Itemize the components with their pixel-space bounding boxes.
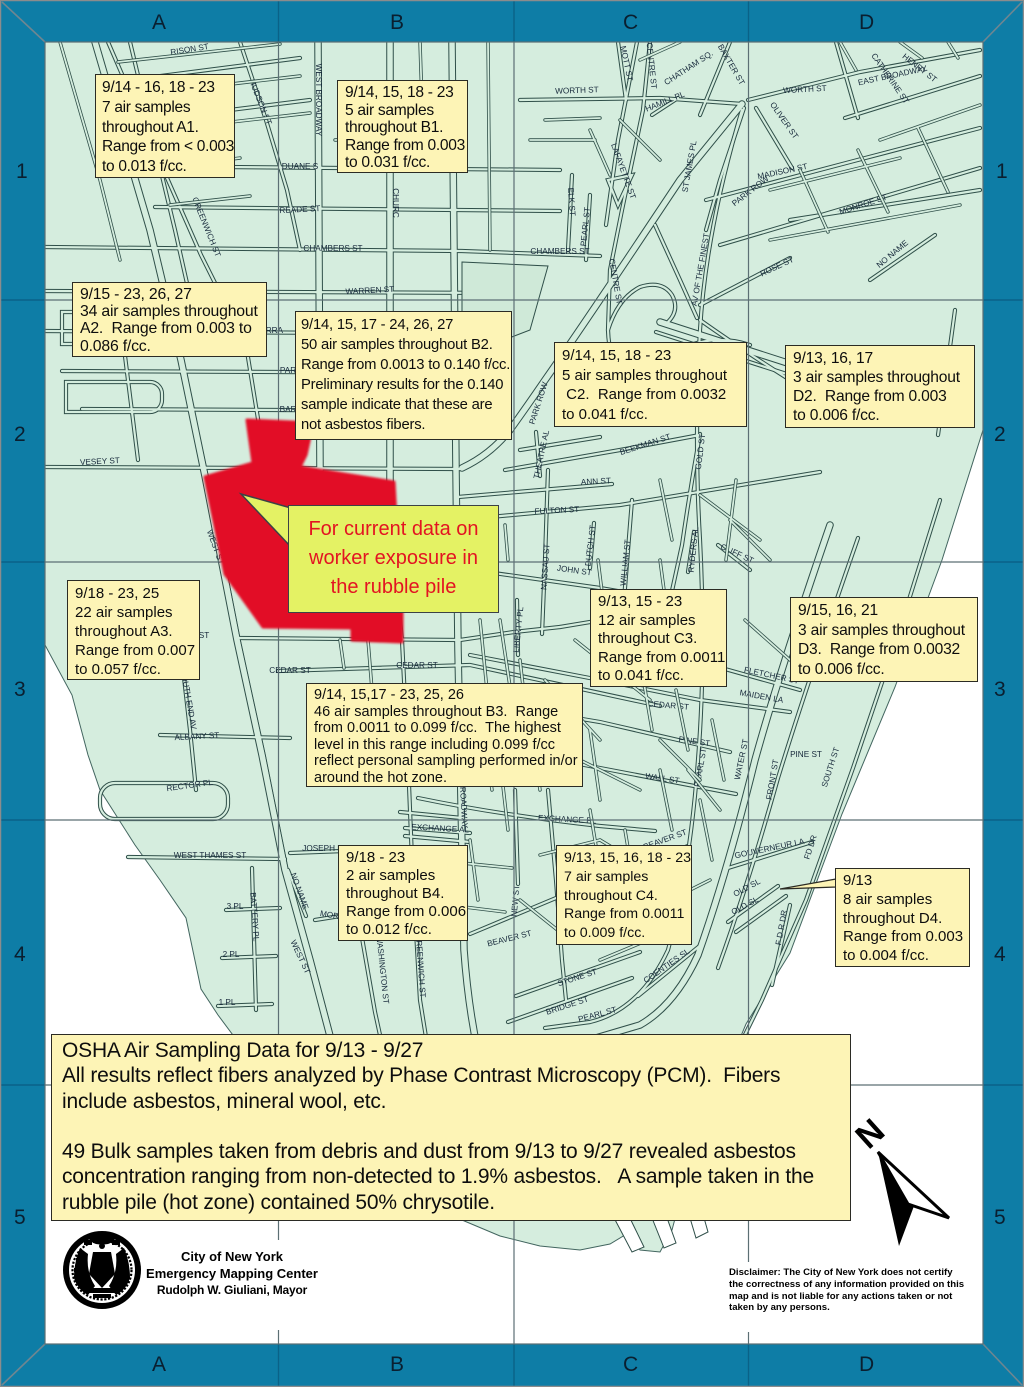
svg-text:PAR: PAR — [280, 366, 296, 375]
svg-text:CHAMBERS ST: CHAMBERS ST — [303, 244, 362, 253]
svg-text:CHURC: CHURC — [391, 188, 400, 218]
svg-text:1 PL: 1 PL — [219, 998, 236, 1007]
svg-text:3 PL: 3 PL — [227, 902, 244, 911]
svg-text:ANN ST: ANN ST — [581, 476, 611, 487]
svg-text:WORTH ST: WORTH ST — [555, 85, 599, 96]
svg-text:PINE ST: PINE ST — [790, 750, 822, 759]
svg-text:CHAMBERS ST: CHAMBERS ST — [530, 247, 589, 256]
svg-text:CEDAR ST: CEDAR ST — [269, 666, 310, 675]
svg-text:WEST BROADWAY: WEST BROADWAY — [314, 64, 323, 137]
svg-text:2 PL: 2 PL — [223, 950, 240, 959]
svg-text:WEST THAMES ST: WEST THAMES ST — [174, 851, 246, 860]
svg-text:CEDAR ST: CEDAR ST — [396, 661, 437, 670]
svg-text:DUANE S: DUANE S — [282, 162, 319, 171]
